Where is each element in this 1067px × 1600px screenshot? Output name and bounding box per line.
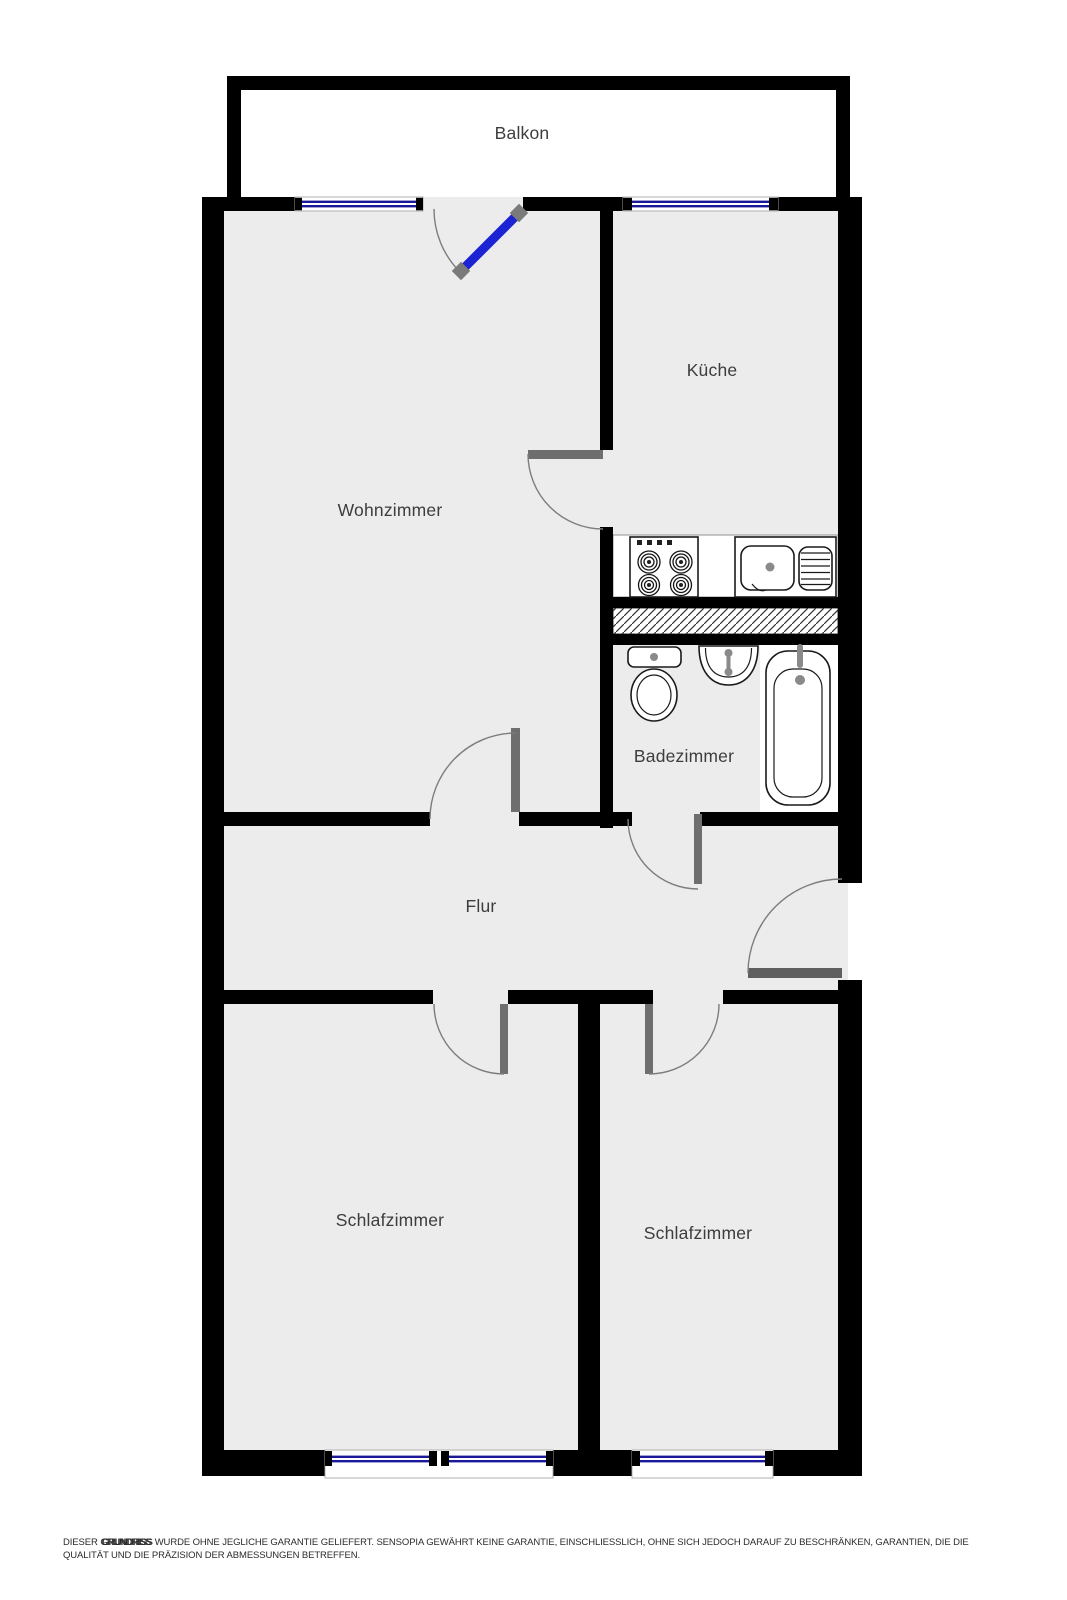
bathtub-icon (766, 644, 830, 805)
toilet-icon (628, 647, 681, 721)
disclaimer-text: DIESER GRUNDRISS WURDE OHNE JEGLICHE GAR… (63, 1536, 1053, 1562)
bedroom-left-window (325, 1450, 553, 1478)
room-label-balkon: Balkon (495, 123, 550, 144)
bedroom-right-window (632, 1450, 773, 1478)
kitchen-sink-icon (735, 537, 836, 597)
disclaimer-overprint-word: GRUNDRISS (100, 1537, 150, 1548)
floorplan-drawing (0, 0, 1067, 1600)
entrance-door-gap (838, 883, 848, 980)
apartment-floor (224, 211, 838, 1450)
shaft-hatch-icon (613, 608, 838, 634)
kitchen-window (623, 197, 778, 211)
living-room-window (295, 197, 423, 211)
balcony-door-gap (423, 197, 523, 211)
floorplan-canvas: Balkon Wohnzimmer Küche Badezimmer Flur … (0, 0, 1067, 1600)
room-label-schlafzimmer-rechts: Schlafzimmer (644, 1223, 752, 1244)
room-label-badezimmer: Badezimmer (634, 746, 734, 767)
room-label-kueche: Küche (687, 360, 738, 381)
room-label-flur: Flur (466, 896, 497, 917)
room-label-wohnzimmer: Wohnzimmer (338, 500, 443, 521)
stove-icon (630, 537, 698, 597)
room-label-schlafzimmer-links: Schlafzimmer (336, 1210, 444, 1231)
disclaimer-line-1: DIESER GRUNDRISS WURDE OHNE JEGLICHE GAR… (63, 1536, 1053, 1549)
disclaimer-line-2: QUALITÄT UND DIE PRÄZISION DER ABMESSUNG… (63, 1549, 1053, 1562)
